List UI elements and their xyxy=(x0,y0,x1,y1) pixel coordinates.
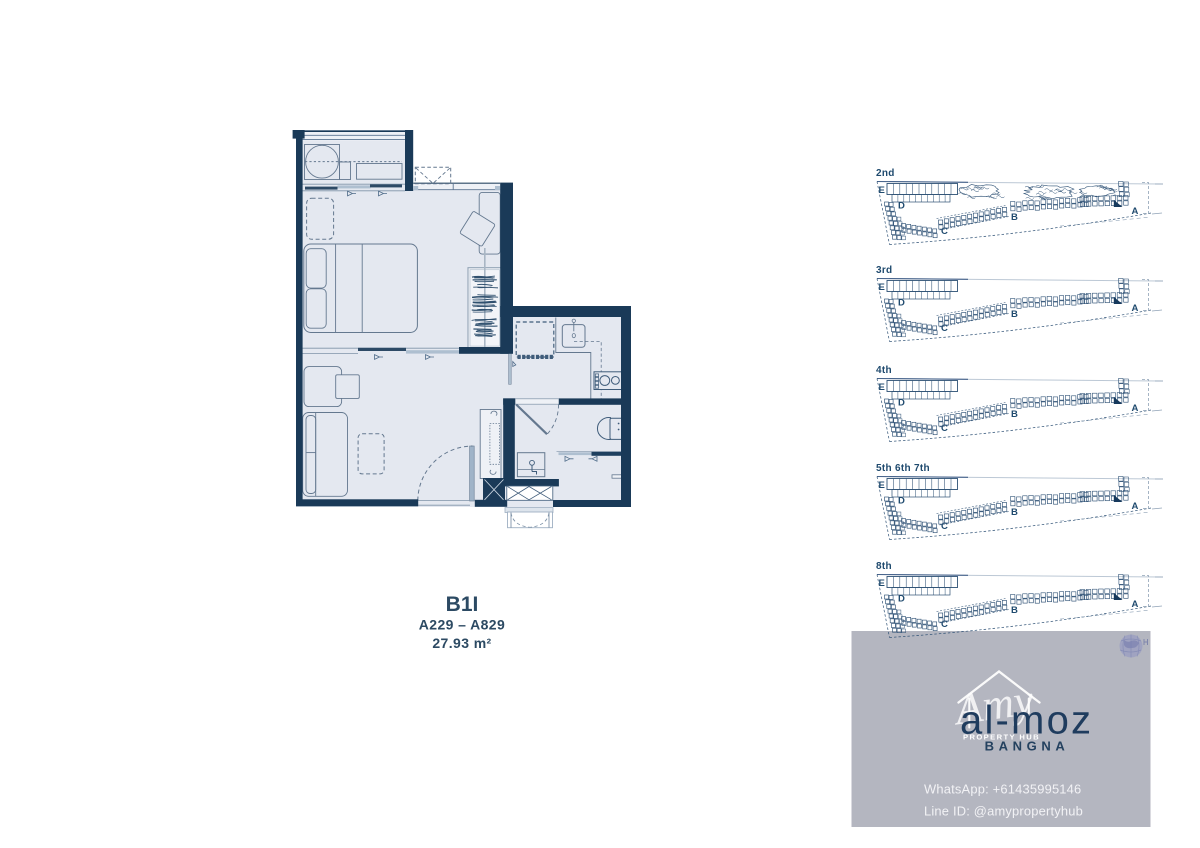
svg-text:BANGNA: BANGNA xyxy=(985,739,1070,754)
svg-text:27.93 m²: 27.93 m² xyxy=(432,635,491,651)
svg-text:WhatsApp: +61435995146: WhatsApp: +61435995146 xyxy=(924,782,1081,797)
svg-text:D: D xyxy=(898,201,905,212)
svg-text:2nd: 2nd xyxy=(876,168,895,179)
svg-text:3rd: 3rd xyxy=(876,265,892,276)
svg-text:B: B xyxy=(1011,409,1018,420)
svg-text:E: E xyxy=(879,480,885,491)
svg-text:B: B xyxy=(1011,507,1018,518)
svg-text:D: D xyxy=(898,594,905,605)
svg-text:B1I: B1I xyxy=(446,593,479,616)
svg-text:4th: 4th xyxy=(876,365,892,376)
svg-text:A: A xyxy=(1132,403,1139,414)
svg-text:A: A xyxy=(1132,303,1139,314)
svg-text:D: D xyxy=(898,298,905,309)
svg-text:5th 6th 7th: 5th 6th 7th xyxy=(876,463,930,474)
svg-text:E: E xyxy=(879,578,885,589)
svg-text:8th: 8th xyxy=(876,561,892,572)
svg-text:E: E xyxy=(879,282,885,293)
svg-text:A229 – A829: A229 – A829 xyxy=(419,617,505,633)
svg-text:B: B xyxy=(1011,605,1018,616)
svg-text:E: E xyxy=(879,185,885,196)
svg-text:D: D xyxy=(898,496,905,507)
svg-text:E: E xyxy=(879,382,885,393)
svg-text:A: A xyxy=(1132,501,1139,512)
svg-text:Line ID: @amypropertyhub: Line ID: @amypropertyhub xyxy=(924,804,1083,819)
svg-text:D: D xyxy=(898,398,905,409)
svg-text:B: B xyxy=(1011,212,1018,223)
svg-text:A: A xyxy=(1132,206,1139,217)
svg-text:B: B xyxy=(1011,309,1018,320)
svg-text:A: A xyxy=(1132,599,1139,610)
